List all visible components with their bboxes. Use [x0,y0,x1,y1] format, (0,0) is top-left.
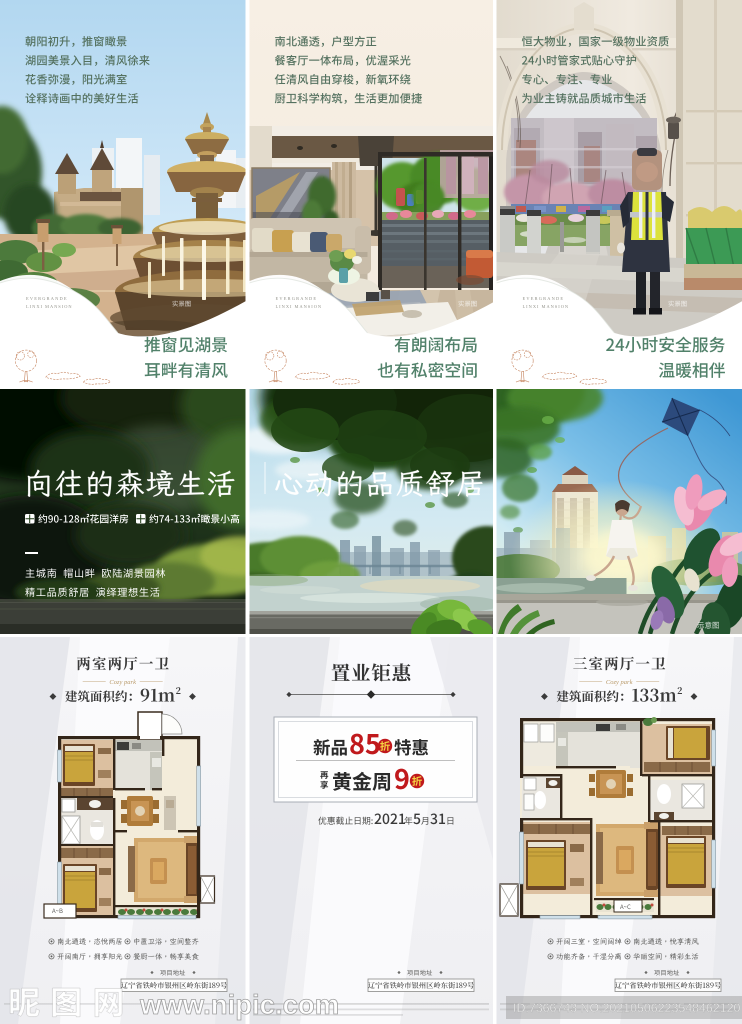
svg-text:ID:7366743 NO:2021050622354846: ID:7366743 NO:20210506223548462120 [513,1001,740,1015]
svg-text:Cozy park: Cozy park [606,679,633,686]
svg-text:EVERGRANDE: EVERGRANDE [523,296,565,301]
svg-text:Cozy park: Cozy park [109,679,136,686]
svg-text:LINXI MANSION: LINXI MANSION [523,304,570,309]
svg-text:EVERGRANDE: EVERGRANDE [276,296,318,301]
svg-text:EVERGRANDE: EVERGRANDE [26,296,68,301]
svg-text:LINXI MANSION: LINXI MANSION [26,304,73,309]
svg-text:www.nipic.com: www.nipic.com [139,989,339,1020]
svg-text:LINXI MANSION: LINXI MANSION [276,304,323,309]
